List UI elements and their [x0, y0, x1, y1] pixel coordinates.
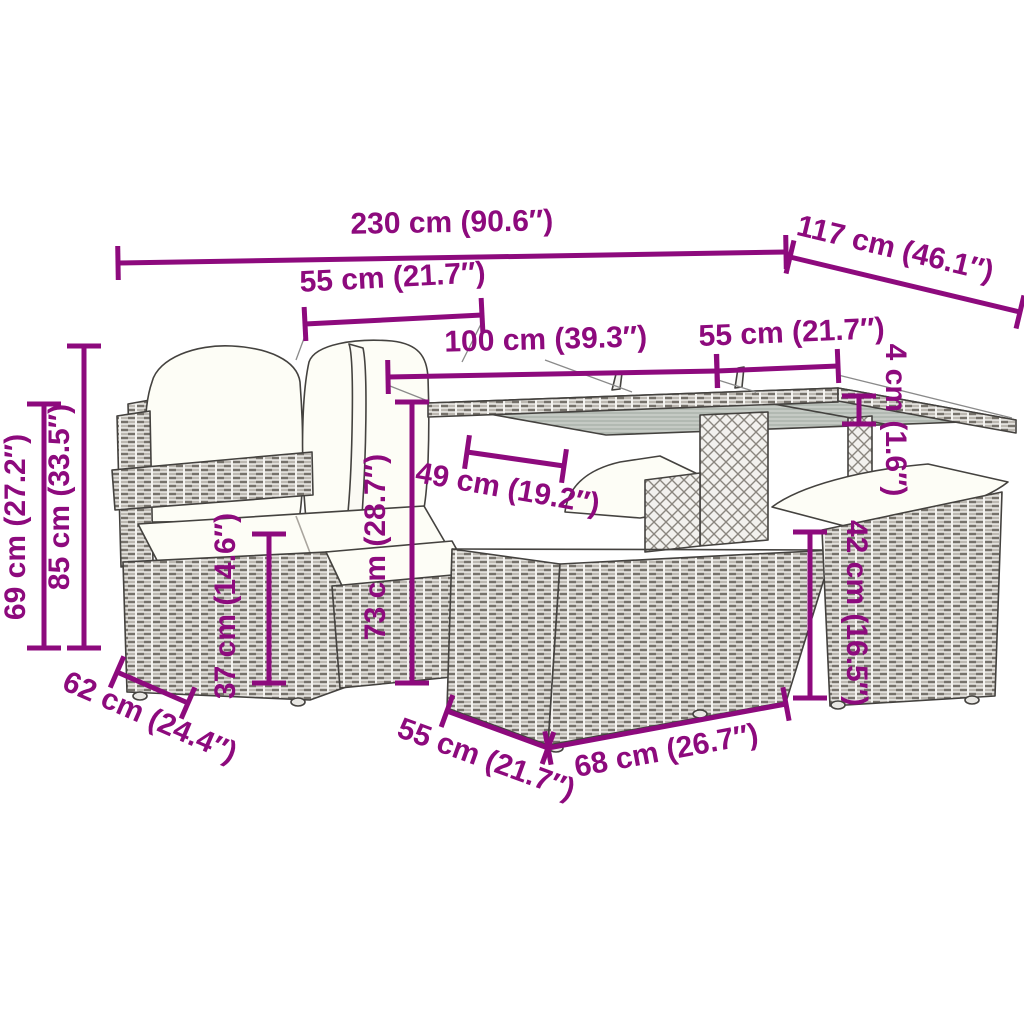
- dimension-table-clearance: 49 cm (19.2″): [413, 435, 602, 521]
- dimension-label: 73 cm (28.7″): [359, 454, 392, 640]
- dimension-table-length: 100 cm (39.3″): [388, 320, 718, 394]
- dimension-label: 230 cm (90.6″): [350, 204, 553, 241]
- dimension-tick: [837, 349, 838, 383]
- dimension-label: 55 cm (21.7″): [698, 312, 885, 353]
- furniture-dimension-diagram: 230 cm (90.6″)117 cm (46.1″)55 cm (21.7″…: [0, 0, 1024, 1024]
- dimension-label: 49 cm (19.2″): [413, 456, 602, 521]
- dimension-back-height: 85 cm (33.5″): [43, 346, 101, 648]
- dimension-line: [467, 452, 564, 466]
- table-pedestal-column: [700, 412, 768, 546]
- dimension-tick: [388, 360, 389, 394]
- dimension-line: [388, 371, 717, 377]
- cube-top-edge: [452, 549, 833, 550]
- dimension-label: 42 cm (16.5″): [840, 520, 873, 706]
- middle-stool-body: [332, 574, 463, 688]
- dimension-tick: [716, 354, 717, 388]
- dimension-label: 37 cm (14.6″): [209, 513, 242, 699]
- dimension-label: 100 cm (39.3″): [444, 320, 648, 358]
- dimension-label: 4 cm (1.6″): [879, 344, 912, 497]
- dimension-tick: [562, 449, 567, 483]
- dimension-tick: [304, 307, 306, 341]
- diagram-canvas: 230 cm (90.6″)117 cm (46.1″)55 cm (21.7″…: [0, 0, 1024, 1024]
- dimension-line: [717, 366, 838, 371]
- dimension-table-depth: 55 cm (21.7″): [698, 312, 885, 388]
- table-pedestal-panel: [645, 473, 700, 552]
- dimension-line: [305, 315, 482, 324]
- dimension-label: 69 cm (27.2″): [0, 434, 32, 620]
- dimension-tick: [118, 246, 119, 280]
- dimension-total-depth: 117 cm (46.1″): [786, 209, 1024, 328]
- dimension-label: 85 cm (33.5″): [43, 404, 76, 590]
- dimension-label: 117 cm (46.1″): [794, 209, 997, 288]
- dimension-label: 55 cm (21.7″): [299, 256, 487, 299]
